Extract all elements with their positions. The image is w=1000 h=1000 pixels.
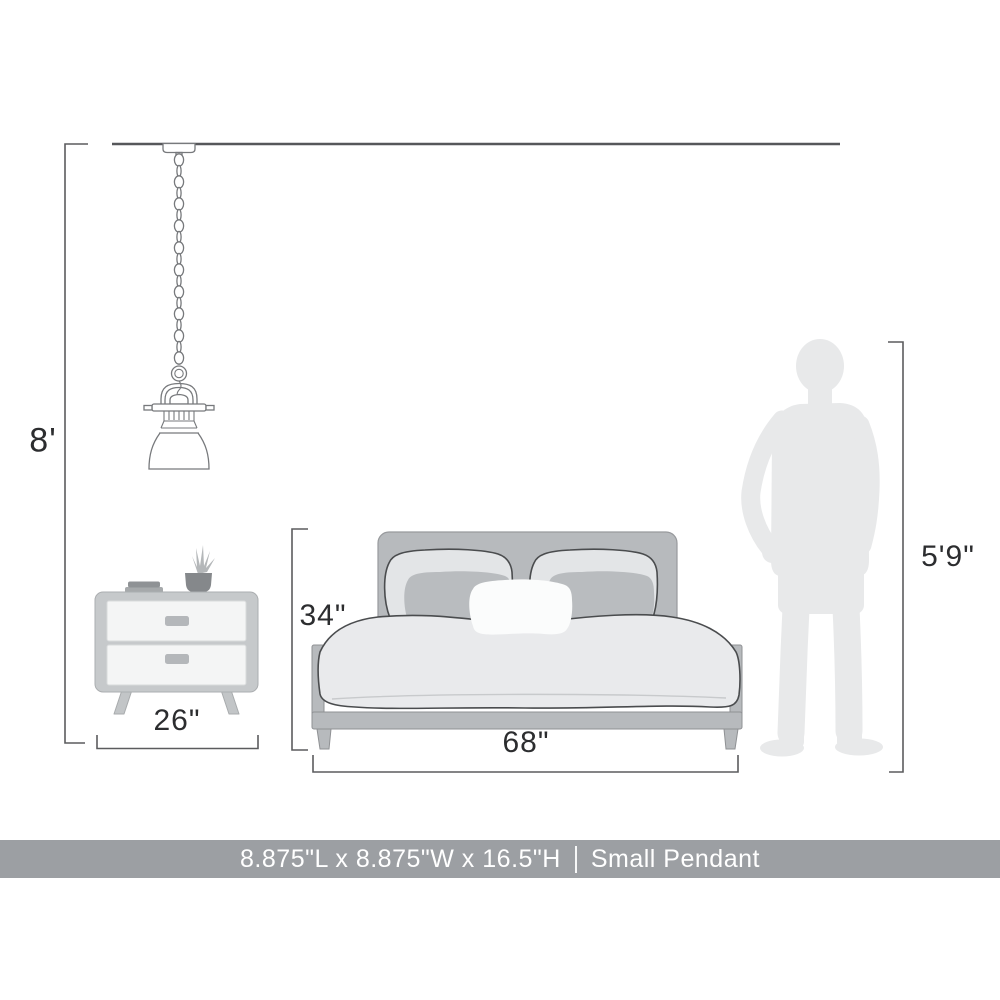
bed-height-label: 34" [299,599,346,633]
bed-leg-right [724,729,738,749]
bed-height-dimension-line [292,529,308,750]
bed-width-label: 68" [502,726,549,760]
pendant-chain [174,154,183,364]
nightstand-leg-right [221,690,239,714]
nightstand-drawer-bottom [107,645,246,685]
plant-pot [185,573,212,592]
ceiling-height-label: 8' [29,422,56,461]
nightstand-handle-top [165,616,189,626]
pendant-neck [161,421,197,428]
plant-leaves [192,545,215,574]
banner-divider [575,846,577,873]
product-name-text: Small Pendant [591,845,760,874]
pendant-crossbar [152,404,206,411]
nightstand-leg-left [114,690,132,714]
pendant-screw-left [144,406,152,411]
nightstand-handle-bottom [165,654,189,664]
pendant-shade [149,433,209,469]
bed-leg-left [317,729,331,749]
diagram-drawing [0,0,1000,840]
nightstand-illustration [95,545,258,714]
bed-illustration [312,532,742,749]
bed-pillow-center [469,579,572,634]
pendant-ring [172,366,187,381]
nightstand-width-label: 26" [153,704,200,738]
person-height-label: 5'9" [921,540,975,574]
pendant-light-illustration [144,144,214,470]
product-info-banner: 8.875"L x 8.875"W x 16.5"H Small Pendant [0,840,1000,878]
pendant-cage [164,411,194,421]
person-height-dimension-line [888,342,903,772]
book-top [128,582,160,588]
person-silhouette [751,339,883,757]
ceiling-height-dimension-line [65,144,88,743]
pendant-canopy [163,144,195,153]
product-dimensions-text: 8.875"L x 8.875"W x 16.5"H [240,845,561,874]
pendant-cap [170,395,188,405]
pendant-screw-right [206,406,214,411]
scale-diagram: 8' 34" 26" 68" 5'9" 8.875"L x 8.875"W x … [0,0,1000,1000]
